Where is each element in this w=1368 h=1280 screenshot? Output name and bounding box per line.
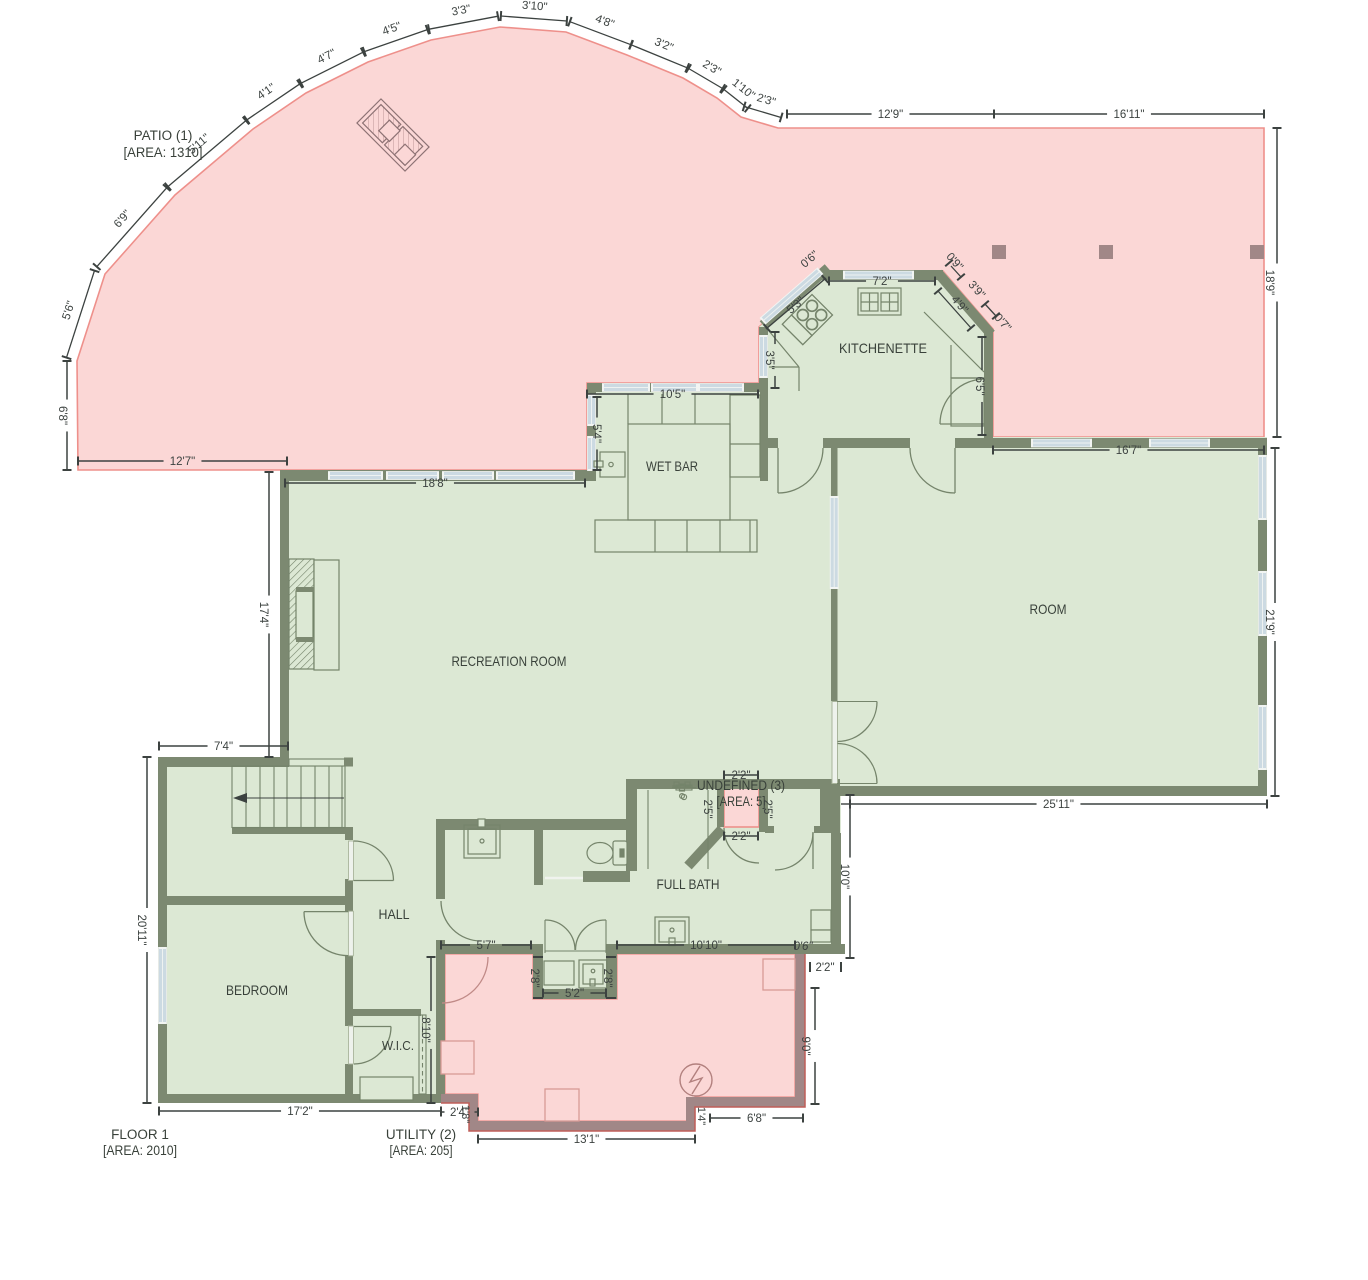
svg-text:5'7": 5'7" (476, 940, 495, 952)
svg-text:BEDROOM: BEDROOM (226, 982, 288, 998)
svg-text:KITCHENETTE: KITCHENETTE (839, 340, 927, 356)
svg-text:W.I.C.: W.I.C. (382, 1038, 414, 1053)
svg-text:7'4": 7'4" (214, 741, 233, 753)
svg-text:2'8": 2'8" (528, 968, 540, 987)
svg-text:PATIO (1): PATIO (1) (134, 128, 193, 143)
svg-text:6'8": 6'8" (56, 406, 68, 425)
svg-text:5'4": 5'4" (590, 424, 602, 443)
svg-text:FULL BATH: FULL BATH (657, 876, 720, 892)
svg-text:8'10": 8'10" (419, 1017, 431, 1042)
svg-text:1'4": 1'4" (695, 1107, 707, 1125)
svg-text:16'11": 16'11" (1113, 109, 1144, 121)
svg-text:18'8": 18'8" (422, 478, 447, 490)
svg-text:2'2": 2'2" (731, 770, 750, 782)
svg-text:[AREA: 2010]: [AREA: 2010] (103, 1143, 177, 1158)
svg-text:WET BAR: WET BAR (646, 458, 698, 474)
svg-text:HALL: HALL (379, 906, 410, 922)
svg-text:10'0": 10'0" (838, 864, 850, 889)
svg-text:RECREATION ROOM: RECREATION ROOM (452, 653, 567, 669)
svg-text:17'2": 17'2" (287, 1106, 312, 1118)
svg-text:[AREA: 5]: [AREA: 5] (717, 794, 766, 809)
svg-text:3'10": 3'10" (522, 0, 548, 14)
svg-text:0'6": 0'6" (793, 941, 813, 953)
svg-text:7'2": 7'2" (872, 276, 891, 288)
svg-text:2'2": 2'2" (815, 962, 834, 974)
svg-text:25'11": 25'11" (1043, 799, 1074, 811)
svg-text:13'1": 13'1" (574, 1134, 599, 1146)
svg-text:UTILITY (2): UTILITY (2) (386, 1127, 456, 1142)
svg-text:12'9": 12'9" (878, 109, 903, 121)
svg-text:16'7": 16'7" (1116, 445, 1141, 457)
svg-text:21'9": 21'9" (1263, 609, 1275, 634)
svg-text:6'8": 6'8" (747, 1113, 766, 1125)
svg-text:9'0": 9'0" (799, 1036, 811, 1055)
svg-text:1'8": 1'8" (459, 1105, 471, 1123)
svg-text:2'5": 2'5" (701, 799, 713, 818)
svg-text:20'11": 20'11" (135, 914, 147, 945)
svg-text:10'5": 10'5" (660, 389, 685, 401)
svg-text:FLOOR 1: FLOOR 1 (111, 1127, 169, 1142)
svg-text:2'2": 2'2" (731, 831, 750, 843)
svg-text:17'4": 17'4" (257, 602, 269, 627)
svg-text:3'5": 3'5" (763, 350, 775, 369)
svg-text:5'2": 5'2" (565, 988, 584, 1000)
svg-text:18'9": 18'9" (1263, 270, 1275, 295)
svg-text:[AREA: 205]: [AREA: 205] (390, 1143, 453, 1158)
svg-text:ROOM: ROOM (1030, 601, 1067, 617)
svg-text:2'8": 2'8" (601, 968, 613, 987)
svg-text:12'7": 12'7" (170, 456, 195, 468)
svg-text:6'5": 6'5" (973, 376, 985, 395)
svg-text:2'5": 2'5" (761, 799, 773, 818)
svg-text:10'10": 10'10" (690, 940, 722, 952)
